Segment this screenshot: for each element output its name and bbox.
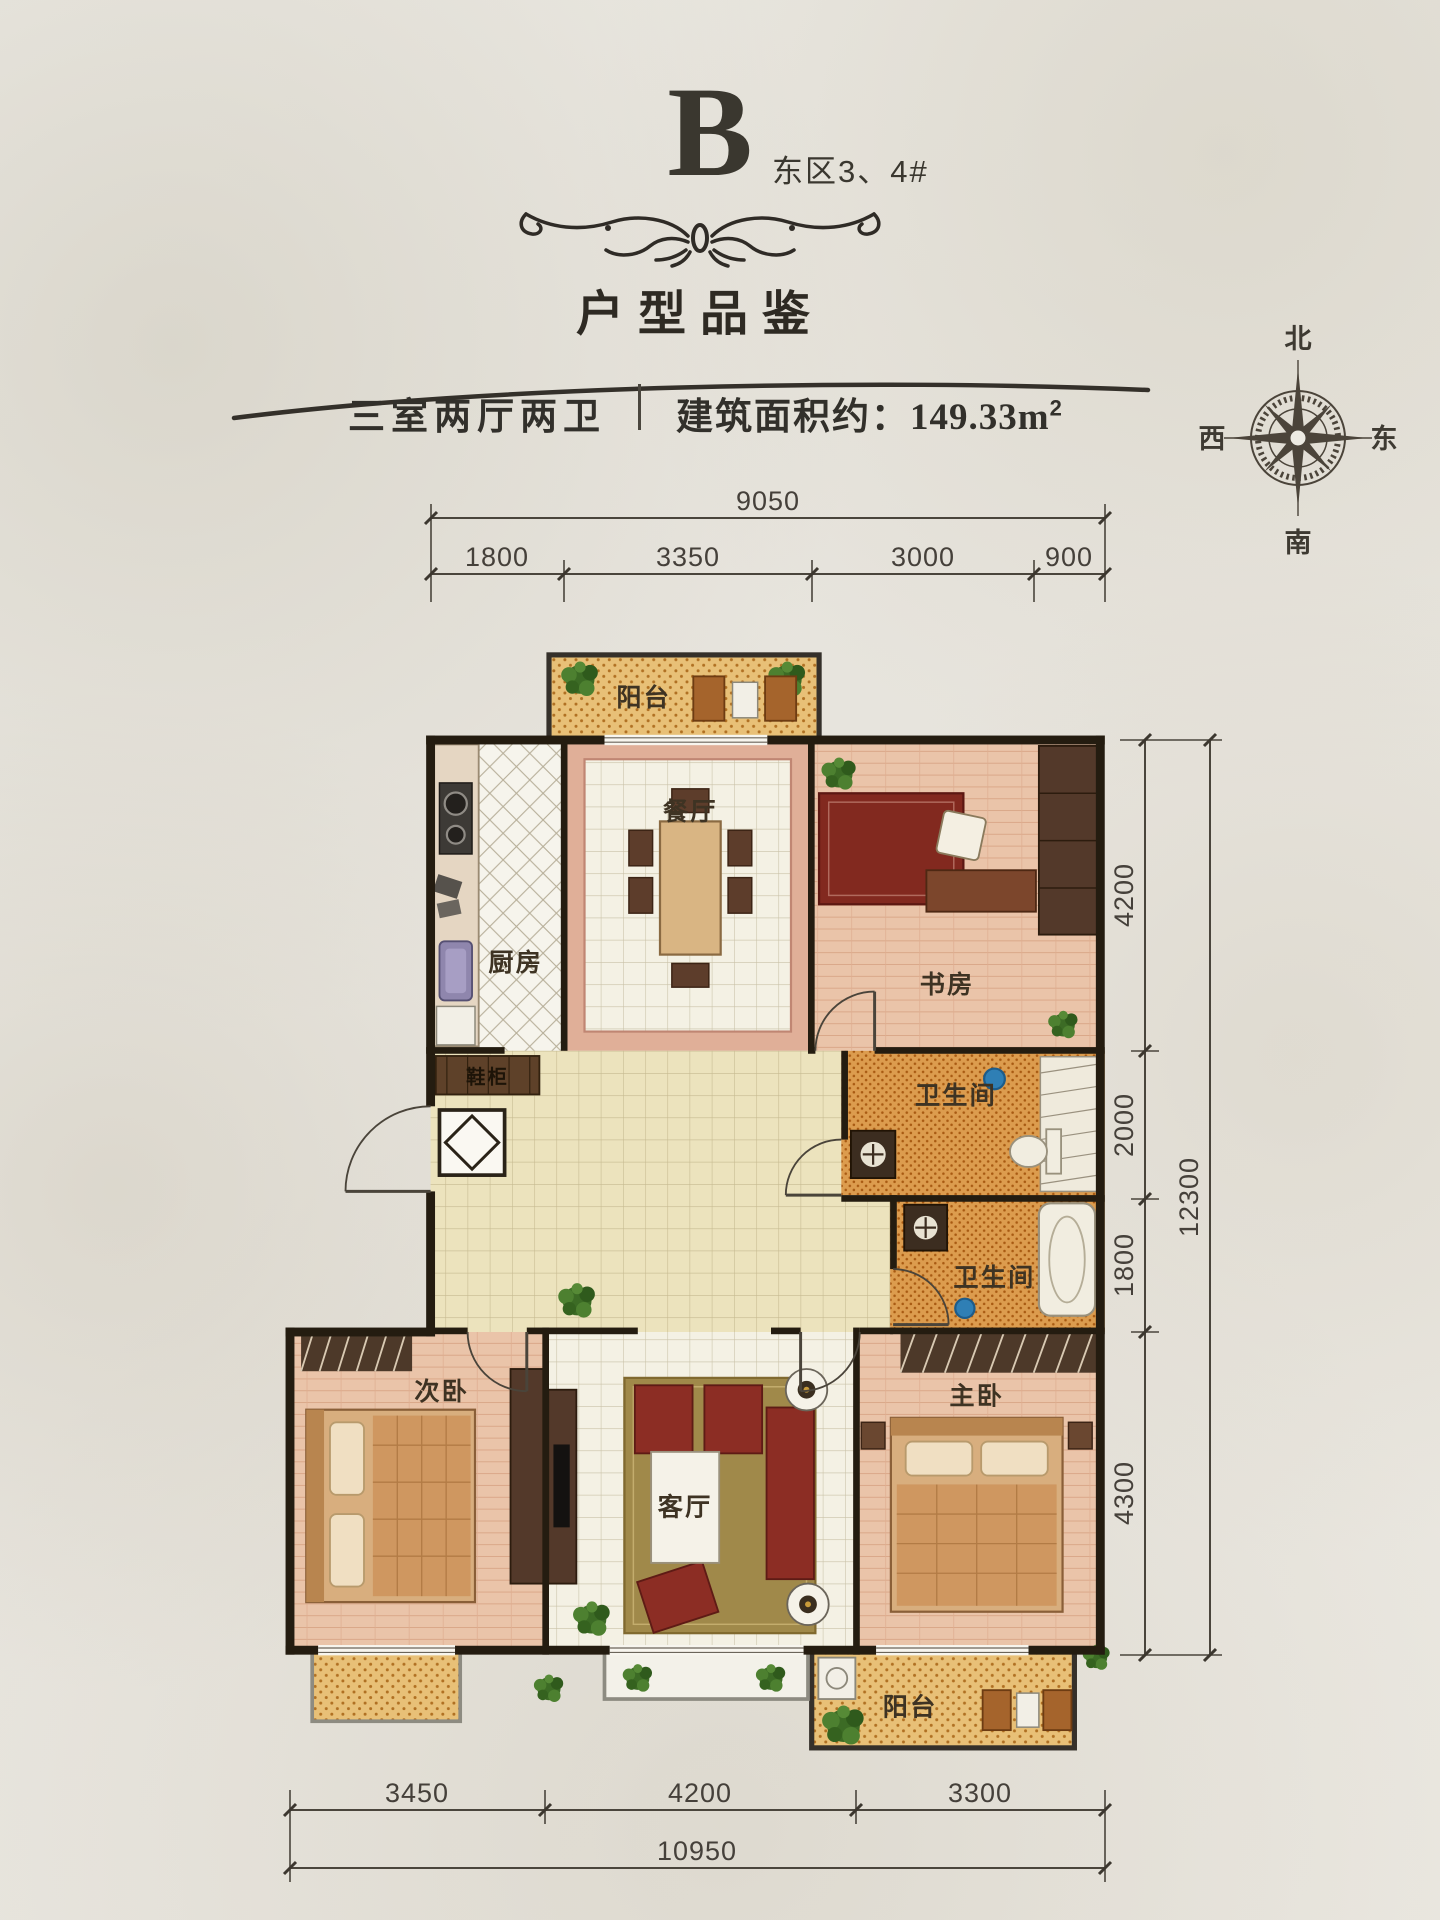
study-label: 书房 (920, 970, 975, 999)
kitchen-label: 厨房 (488, 948, 543, 977)
master-bed (891, 1418, 1063, 1612)
dim-bottom-seg-2: 4200 (668, 1778, 732, 1808)
bathtub-icon (1039, 1203, 1095, 1315)
toilet-icon (1010, 1136, 1047, 1167)
dim-bottom-seg-3: 3300 (948, 1778, 1012, 1808)
bedroom2-wardrobe (511, 1369, 546, 1584)
dim-top-seg-1: 1800 (465, 542, 529, 572)
bath1-label: 卫生间 (915, 1082, 997, 1110)
entry-mat (439, 1110, 504, 1175)
desk-chair (936, 810, 987, 861)
spec-area: 建筑面积约：149.33m2 (676, 386, 1064, 440)
compass-west-label: 西 (1199, 424, 1226, 454)
tv-icon (553, 1444, 569, 1527)
balcony-top-label: 阳台 (616, 683, 671, 712)
floor-plan: 阳台 厨房 餐厅 书房 卫生间 卫生间 鞋柜 次卧 客厅 主卧 阳台 9050 … (200, 490, 1350, 1900)
flourish-ornament (510, 206, 890, 270)
armchair (635, 1385, 693, 1453)
dim-right-seg-4: 4300 (1109, 1461, 1139, 1525)
compass-star (1228, 368, 1368, 508)
sofa (767, 1407, 814, 1579)
dim-right-seg-1: 4200 (1109, 863, 1139, 927)
block-note: 东区3、4# (772, 146, 929, 191)
bedroom2-label: 次卧 (414, 1378, 469, 1406)
dining-label: 餐厅 (663, 798, 718, 826)
spec-area-label: 建筑面积约： (676, 396, 910, 437)
dim-right-seg-2: 2000 (1109, 1093, 1139, 1157)
dimension-top: 9050 1800 3350 3000 900 (425, 490, 1111, 602)
dim-top-total: 9050 (736, 490, 800, 516)
spec-area-value: 149.33m (910, 397, 1050, 438)
kitchen-counter (433, 744, 479, 1046)
nightstand (861, 1422, 885, 1449)
master-label: 主卧 (949, 1383, 1004, 1411)
dimension-bottom: 3450 4200 3300 10950 (284, 1778, 1111, 1882)
washing-machine (818, 1658, 855, 1699)
kitchen-appliance (437, 1006, 475, 1044)
dimension-right: 4200 2000 1800 4300 12300 (1109, 734, 1222, 1661)
dim-top-seg-2: 3350 (656, 542, 720, 572)
dim-top-seg-4: 900 (1045, 542, 1093, 572)
page-title: 户型品鉴 (460, 274, 940, 344)
nightstand (1068, 1422, 1092, 1449)
spec-rooms: 三室两厅两卫 (348, 386, 606, 440)
shoe-cabinet-label: 鞋柜 (466, 1065, 509, 1088)
bath2-label: 卫生间 (953, 1264, 1035, 1292)
floorplan-page: B 东区3、4# 户型品鉴 三 (0, 0, 1440, 1920)
living-label: 客厅 (658, 1493, 713, 1522)
desk (926, 870, 1036, 911)
bath2-basin-icon (955, 1299, 974, 1318)
armchair (704, 1385, 762, 1453)
dim-right-total: 12300 (1174, 1157, 1204, 1237)
spec-divider-line (638, 384, 641, 430)
dim-top-seg-3: 3000 (891, 542, 955, 572)
balcony-bottom-label: 阳台 (883, 1692, 938, 1721)
block-letter: B (640, 62, 780, 203)
dim-bottom-seg-1: 3450 (385, 1778, 449, 1808)
dim-right-seg-3: 1800 (1109, 1233, 1139, 1297)
plant-icon (534, 1674, 563, 1702)
compass-east-label: 东 (1371, 423, 1398, 454)
bedroom2-bed (306, 1410, 475, 1602)
dim-bottom-total: 10950 (657, 1836, 737, 1866)
spec-area-sup: 2 (1050, 396, 1064, 421)
bay-window-left (312, 1650, 460, 1721)
compass-north-label: 北 (1285, 324, 1312, 354)
